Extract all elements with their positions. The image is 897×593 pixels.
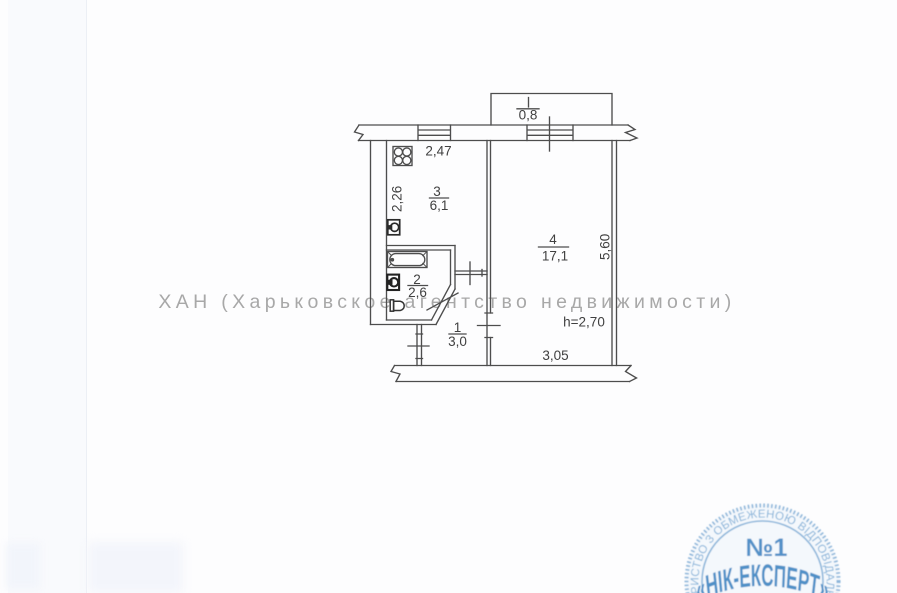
- svg-text:3: 3: [433, 184, 441, 199]
- svg-text:17,1: 17,1: [542, 249, 568, 264]
- svg-text:1: 1: [454, 320, 462, 335]
- svg-text:4: 4: [549, 232, 557, 247]
- svg-text:5,60: 5,60: [598, 234, 613, 260]
- svg-text:6,1: 6,1: [430, 198, 449, 213]
- svg-text:№1: №1: [746, 534, 788, 562]
- svg-text:3,05: 3,05: [542, 348, 568, 363]
- svg-text:2,6: 2,6: [408, 285, 427, 300]
- svg-text:h=2,70: h=2,70: [563, 315, 605, 330]
- svg-text:3,0: 3,0: [448, 334, 467, 349]
- svg-text:2,26: 2,26: [390, 186, 405, 212]
- svg-text:0,8: 0,8: [519, 108, 538, 123]
- svg-text:2,47: 2,47: [425, 144, 451, 159]
- svg-text:ХАН (Харьковское агентство нед: ХАН (Харьковское агентство недвижимости): [158, 291, 735, 313]
